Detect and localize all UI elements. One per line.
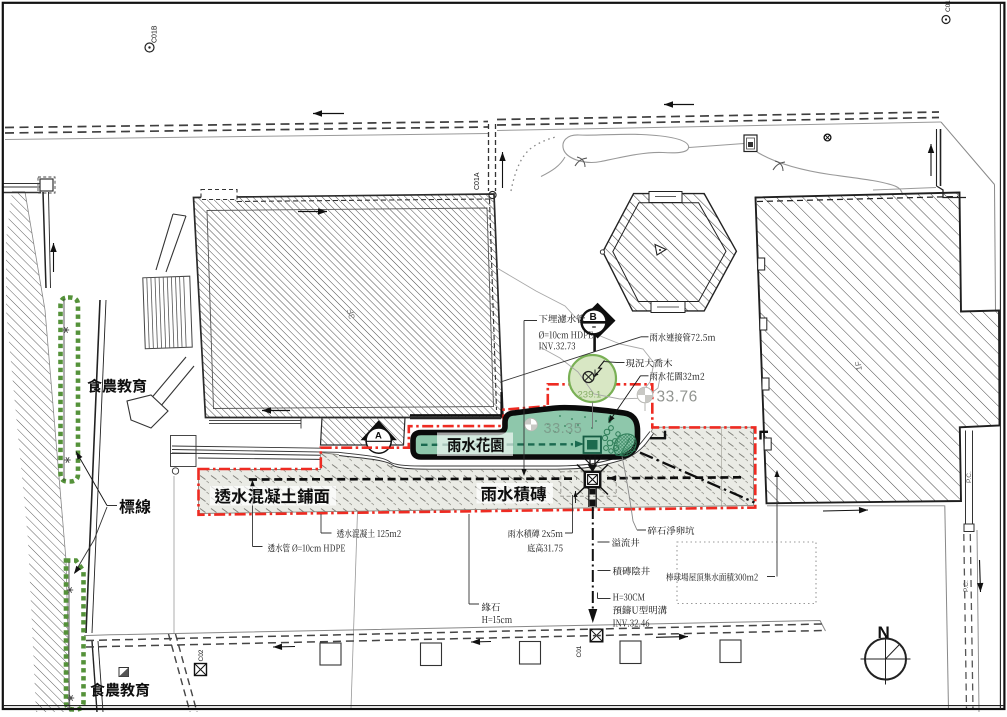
svg-text:33.35: 33.35	[544, 421, 583, 437]
svg-text:A: A	[375, 431, 382, 442]
svg-text:239.1: 239.1	[578, 390, 602, 401]
svg-text:C01A: C01A	[474, 172, 481, 190]
svg-text:N: N	[878, 623, 890, 642]
svg-text:C01B: C01B	[152, 25, 159, 43]
svg-text:P.C.: P.C.	[963, 580, 970, 592]
svg-text:C02: C02	[198, 649, 205, 661]
svg-text:1F: 1F	[853, 360, 864, 371]
svg-text:33.76: 33.76	[657, 389, 698, 406]
svg-text:P.C.: P.C.	[966, 471, 973, 483]
svg-text:C01: C01	[576, 645, 583, 657]
svg-text:B: B	[590, 312, 597, 323]
